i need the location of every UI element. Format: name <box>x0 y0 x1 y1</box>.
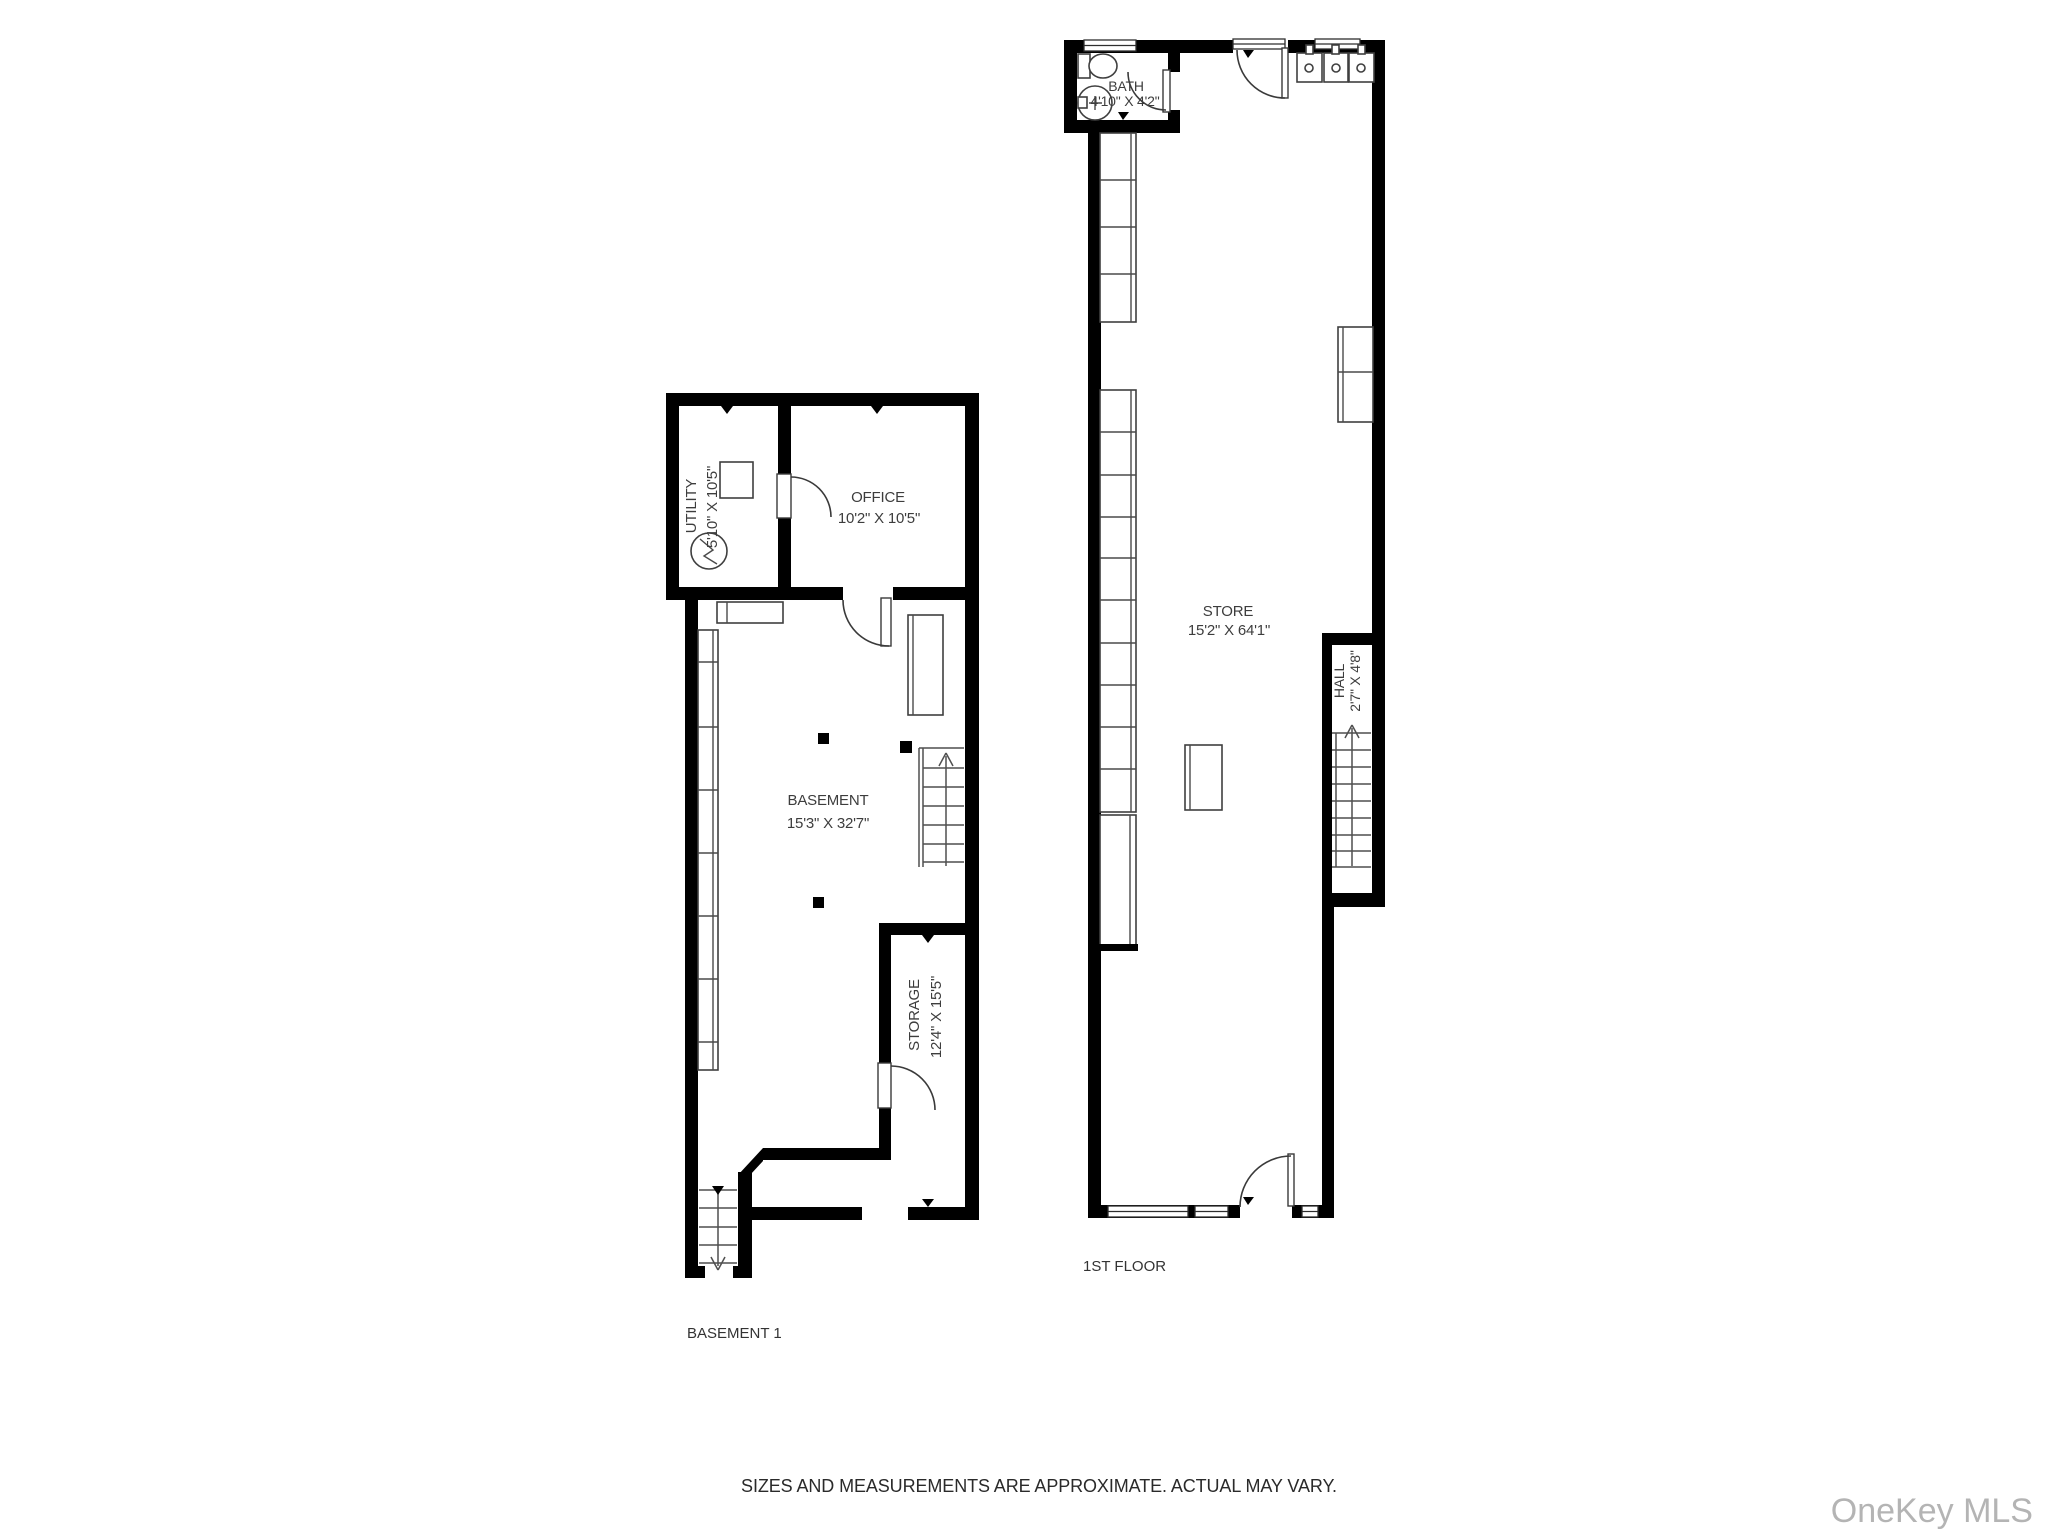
wall-segment <box>965 393 979 1220</box>
triple-sink-unit <box>1297 45 1374 82</box>
wall-segment <box>1372 40 1385 907</box>
wall-segment <box>685 600 698 1277</box>
wall-segment <box>1322 893 1334 1218</box>
wall-tick <box>1243 1197 1254 1205</box>
wall-stub <box>733 1266 752 1278</box>
support-post <box>900 741 912 753</box>
wall-segment <box>778 406 791 475</box>
wall-segment <box>879 935 891 1066</box>
sink-drain <box>1357 64 1365 72</box>
basement-stairs-down <box>699 1186 737 1270</box>
wall-segment <box>666 393 679 600</box>
support-post <box>818 733 829 744</box>
room-name-basement: BASEMENT <box>788 792 869 809</box>
wall-segment <box>1168 110 1180 133</box>
window <box>1084 40 1136 51</box>
door-swing-arc <box>791 477 831 517</box>
wall-segment <box>666 393 978 406</box>
wall-stub <box>685 1266 705 1278</box>
basement-stairs-up <box>919 748 964 867</box>
room-dims-utility: 5'10" X 10'5" <box>704 466 721 548</box>
sink-tap-icon <box>1078 97 1087 108</box>
hall-stairs-up <box>1332 725 1371 867</box>
door-leaf <box>1288 1154 1294 1206</box>
wall-tick <box>922 1199 934 1207</box>
room-dims-office: 10'2" X 10'5" <box>838 510 920 527</box>
shelf-run <box>698 630 718 1070</box>
wall-segment <box>666 587 843 600</box>
sink-drain <box>1305 64 1313 72</box>
room-dims-store: 15'2" X 64'1" <box>1188 622 1270 639</box>
wall-tick <box>922 935 934 943</box>
door-leaf <box>777 474 791 518</box>
room-dims-basement: 15'3" X 32'7" <box>787 815 869 832</box>
room-dims-hall: 2'7" X 4'8" <box>1347 650 1363 712</box>
door-transom <box>1233 39 1285 49</box>
room-dims-storage: 12'4" X 15'5" <box>928 976 945 1058</box>
room-name-hall: HALL <box>1331 663 1347 698</box>
wall-segment <box>1064 120 1180 133</box>
storefront-window <box>1302 1206 1318 1217</box>
plan-caption-basement: BASEMENT 1 <box>687 1325 782 1342</box>
counter-end-cap <box>1097 944 1138 951</box>
utility-unit <box>720 462 753 498</box>
faucet-icon <box>1332 45 1339 54</box>
door-leaf <box>1282 48 1288 98</box>
room-name-storage: STORAGE <box>906 979 923 1051</box>
wall-tick <box>1243 50 1254 58</box>
wall-segment <box>879 923 979 935</box>
basement-fixtures <box>691 462 943 1070</box>
wall-tick <box>871 406 883 414</box>
wall-segment <box>908 1207 979 1220</box>
wall-segment <box>1064 40 1077 133</box>
storefront-window <box>1195 1206 1228 1217</box>
door-leaf <box>878 1063 891 1108</box>
door-swing-arc <box>891 1066 935 1110</box>
storefront-window <box>1108 1206 1188 1217</box>
room-name-store: STORE <box>1203 603 1254 620</box>
plan-caption-first-floor: 1ST FLOOR <box>1083 1258 1166 1275</box>
wall-segment <box>1328 893 1385 907</box>
room-name-bath: BATH <box>1108 78 1144 94</box>
wall-tick <box>721 406 733 414</box>
sink-drain <box>1332 64 1340 72</box>
wall-tick <box>1118 112 1129 120</box>
wall-segment <box>893 587 978 600</box>
support-post <box>813 897 824 908</box>
floor-plan-canvas: UTILITY 5'10" X 10'5" OFFICE 10'2" X 10'… <box>0 0 2048 1536</box>
wall-segment <box>738 1172 752 1277</box>
wall-shelving <box>1100 133 1136 812</box>
room-name-utility: UTILITY <box>683 479 700 534</box>
faucet-icon <box>1358 45 1365 54</box>
toilet-bowl-icon <box>1089 54 1117 78</box>
wall-shelving <box>698 630 718 1070</box>
wall-segment <box>1168 40 1180 72</box>
onekey-mls-watermark: OneKey MLS <box>1831 1492 2033 1531</box>
door-leaf <box>1163 70 1170 112</box>
first-floor-plan: BATH 4'10" X 4'2" STORE 15'2" X 64'1" HA… <box>1064 39 1385 1275</box>
wall-segment <box>747 1207 862 1220</box>
door-leaf <box>881 598 891 646</box>
door-swing-arc <box>1237 50 1285 98</box>
room-name-office: OFFICE <box>851 489 905 506</box>
room-dims-bath: 4'10" X 4'2" <box>1091 93 1160 109</box>
faucet-icon <box>1306 45 1313 54</box>
wall-segment <box>1088 120 1101 1218</box>
wall-segment <box>778 517 791 600</box>
basement-plan: UTILITY 5'10" X 10'5" OFFICE 10'2" X 10'… <box>666 393 979 1342</box>
disclaimer-text: SIZES AND MEASUREMENTS ARE APPROXIMATE. … <box>0 1476 2048 1497</box>
wall-segment <box>1322 633 1372 645</box>
wall-segment <box>763 1148 891 1160</box>
